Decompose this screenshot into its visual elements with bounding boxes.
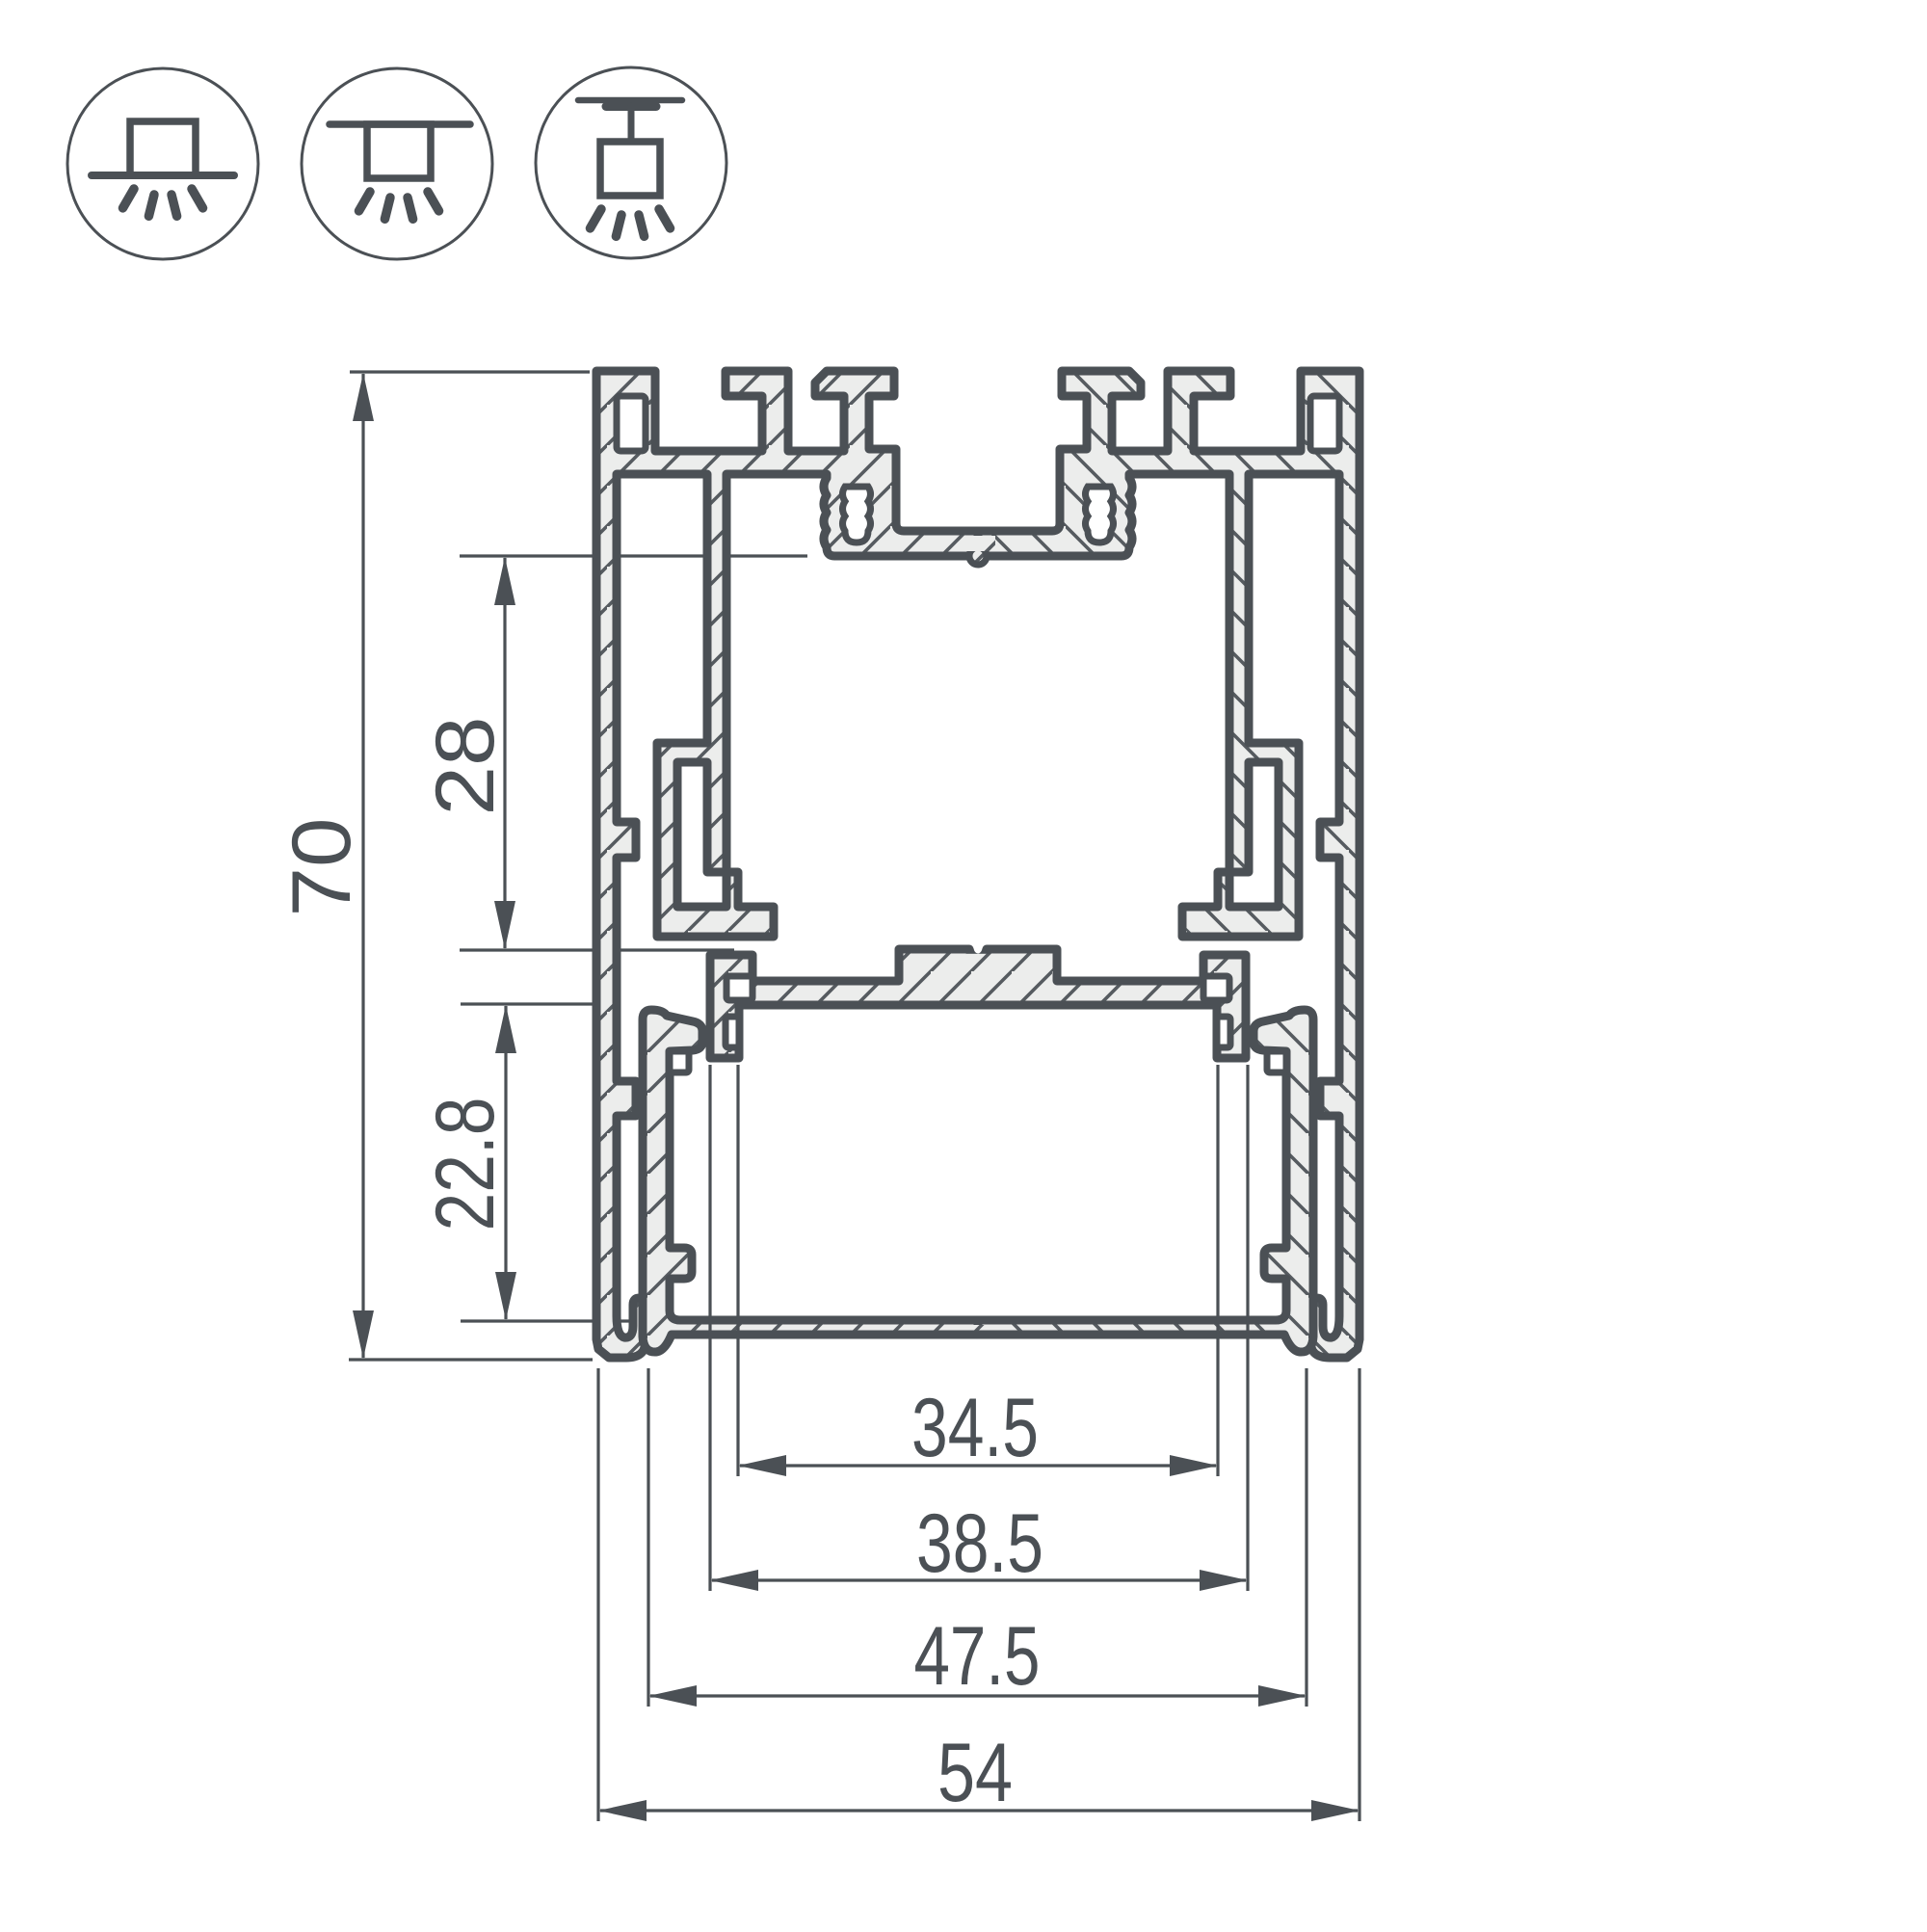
svg-text:34.5: 34.5 bbox=[911, 1382, 1039, 1474]
svg-text:38.5: 38.5 bbox=[916, 1497, 1043, 1590]
svg-text:54: 54 bbox=[937, 1727, 1013, 1819]
svg-text:70: 70 bbox=[276, 818, 368, 917]
svg-text:22.8: 22.8 bbox=[419, 1098, 512, 1231]
svg-text:28: 28 bbox=[419, 717, 512, 816]
svg-text:47.5: 47.5 bbox=[914, 1610, 1041, 1703]
